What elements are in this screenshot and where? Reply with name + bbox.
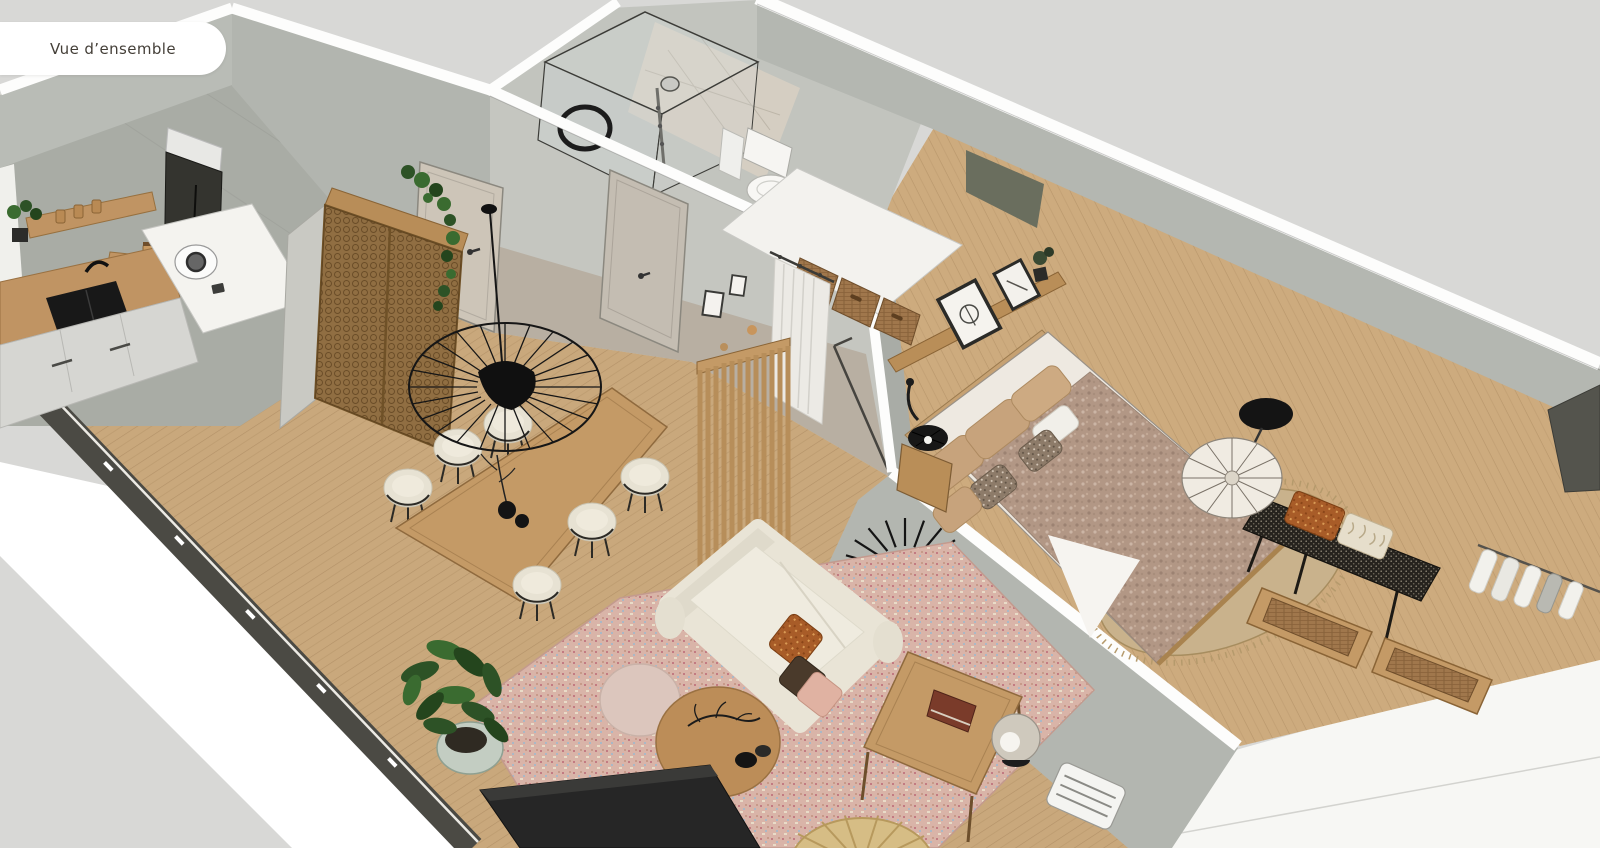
floorplan-canvas: Vue d’ensemble: [0, 0, 1600, 848]
table-vase: [515, 514, 529, 528]
table-vase: [498, 501, 516, 519]
view-label: Vue d’ensemble: [50, 40, 176, 58]
apartment-3d-render: [0, 0, 1600, 848]
view-label-pill: Vue d’ensemble: [0, 22, 226, 75]
